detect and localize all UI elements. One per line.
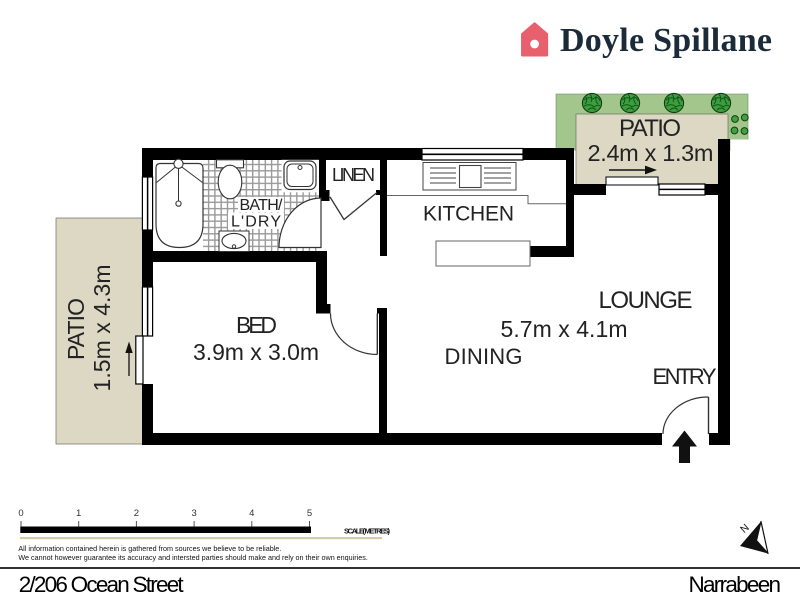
svg-text:We cannot however guarantee it: We cannot however guarantee its accuracy… — [18, 553, 367, 562]
svg-text:1.5m x 4.3m: 1.5m x 4.3m — [89, 265, 115, 392]
svg-text:BED: BED — [236, 312, 277, 338]
svg-text:2: 2 — [134, 508, 139, 519]
svg-text:Doyle Spillane: Doyle Spillane — [560, 22, 772, 59]
svg-text:3.9m x 3.0m: 3.9m x 3.0m — [193, 339, 319, 365]
svg-text:All information contained here: All information contained herein is gath… — [18, 544, 281, 553]
svg-text:BATH/: BATH/ — [240, 197, 284, 214]
svg-text:5.7m x 4.1m: 5.7m x 4.1m — [501, 316, 628, 342]
svg-text:0: 0 — [18, 508, 23, 519]
svg-text:PATIO: PATIO — [63, 298, 89, 360]
svg-text:SCALE( METRES): SCALE( METRES) — [344, 527, 391, 536]
svg-text:KITCHEN: KITCHEN — [423, 203, 514, 226]
svg-text:2.4m x 1.3m: 2.4m x 1.3m — [588, 140, 714, 166]
svg-text:2/206 Ocean Street: 2/206 Ocean Street — [19, 572, 185, 597]
svg-text:ENTRY: ENTRY — [653, 364, 717, 389]
svg-text:3: 3 — [191, 508, 196, 519]
svg-text:Narrabeen: Narrabeen — [689, 572, 782, 597]
svg-text:1: 1 — [76, 508, 81, 519]
svg-text:5: 5 — [307, 508, 312, 519]
svg-text:L'DRY: L'DRY — [231, 214, 281, 231]
svg-text:4: 4 — [249, 508, 254, 519]
svg-text:LINEN: LINEN — [332, 165, 375, 185]
svg-text:DINING: DINING — [445, 344, 523, 369]
svg-text:PATIO: PATIO — [619, 115, 681, 142]
svg-text:LOUNGE: LOUNGE — [599, 287, 693, 314]
